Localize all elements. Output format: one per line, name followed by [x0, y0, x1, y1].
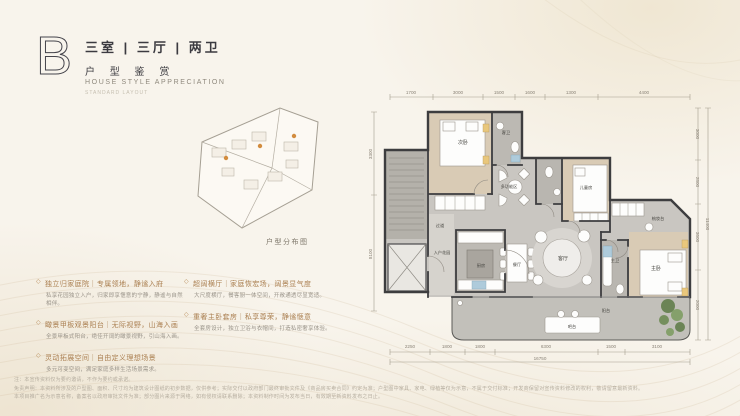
dim-value: 3300: [368, 148, 373, 159]
room-label-guest-bath: 客卫: [502, 129, 510, 136]
disclaimer-line: 注：本宣传资料仅为要约邀请，不作为要约或承诺。: [14, 376, 726, 384]
feature-item: ◇瞰景甲板观景阳台｜无际视野，山海入画 全景甲板式阳台，绝佳开阔的瞰景视野，引山…: [36, 320, 186, 342]
dim-total: 16750: [534, 356, 547, 361]
dim-value: 1700: [406, 90, 417, 95]
dim-value: 8100: [368, 248, 373, 259]
disclaimer-line: 免责声明：本资料所涉及的户型图、面积、尺寸均为建筑设计图纸的初步数据，仅供参考；…: [14, 385, 726, 393]
bath-mat: [511, 155, 520, 162]
room-label-bar: 吧台: [568, 323, 576, 330]
disclaimer-block: 注：本宣传资料仅为要约邀请，不作为要约或承诺。 免责声明：本资料所涉及的户型图、…: [14, 376, 726, 401]
armchair: [535, 231, 547, 243]
feature-item: ◇超阔横厅｜家庭恢宏场，阔景显气度 大尺度横厅，餐客厨一体空间，开敞通透尽显宽适…: [184, 279, 334, 301]
dim-value: 4400: [639, 90, 650, 95]
dim-value: 1300: [566, 90, 577, 95]
subtitle-english: HOUSE STYLE APPRECIATION: [85, 79, 226, 86]
dimension-chain-right: 3000 2800 3600 2000 11400: [695, 108, 711, 340]
nightstand: [483, 156, 489, 164]
toilet-icon: [616, 284, 624, 294]
side-table: [533, 275, 543, 285]
feature-title: 独立归家庭院｜专属领地，静谧入府: [45, 279, 163, 289]
dim-value: 1500: [494, 90, 505, 95]
diamond-bullet-icon: ◇: [184, 312, 189, 319]
dim-value: 3000: [695, 129, 700, 140]
sink-icon: [496, 122, 504, 130]
room-label-vanity: 梳妆台: [652, 215, 665, 222]
dimension-chain-left: 3300 8100: [368, 112, 377, 311]
dim-value: 3000: [453, 90, 464, 95]
feature-title: 超阔横厅｜家庭恢宏场，阔景显气度: [193, 279, 311, 289]
room-label-multifunction: 多功能区: [501, 183, 518, 190]
room-label-living: 客厅: [558, 255, 568, 262]
building-outline: [198, 108, 318, 228]
room-label-master-bath: 主卫: [611, 257, 619, 263]
sink-icon: [554, 189, 561, 196]
feature-item: ◇独立归家庭院｜专属领地，静谧入府 私享花园独立入户，归家即享惬意的宁静，静谧与…: [36, 279, 186, 309]
dim-value: 2250: [405, 344, 416, 349]
room-label-corridor: 过道: [436, 222, 445, 229]
subtitle-chinese: 户 型 鉴 赏: [85, 63, 175, 78]
floor-plan: 次卧 客卫 多功能区 儿童房 梳妆台 主卫 主卧 过道 入户花园 厨房 餐厅 客…: [368, 84, 713, 369]
room-label-dining: 餐厅: [513, 261, 521, 268]
pillow: [443, 122, 455, 131]
pillow: [668, 282, 682, 291]
dim-value: 1800: [475, 344, 486, 349]
diamond-bullet-icon: ◇: [36, 279, 41, 286]
plan-type-letter: B: [33, 24, 87, 86]
kitchen-sink: [472, 281, 486, 289]
vanity-sink-icon: [645, 223, 653, 231]
feature-desc: 私享花园独立入户，归家即享惬意的宁静，静谧与自然相伴。: [46, 293, 186, 309]
feature-title: 瞰景甲板观景阳台｜无际视野，山海入画: [45, 320, 178, 330]
feature-item: ◇灵动拓展空间｜自由定义理想场景 多元可变空间，满足家庭多样生活场景需求。: [36, 353, 186, 375]
toilet-icon: [545, 167, 553, 178]
dim-total: 11400: [705, 218, 710, 231]
room-label-kids-room: 儿童房: [580, 184, 593, 191]
dim-value: 6300: [541, 344, 552, 349]
site-plan-caption: 户型分布图: [266, 237, 309, 247]
feature-list-left: ◇独立归家庭院｜专属领地，静谧入府 私享花园独立入户，归家即享惬意的宁静，静谧与…: [36, 279, 186, 375]
dim-value: 1800: [442, 344, 453, 349]
site-plan-inset: [188, 102, 333, 242]
dim-value: 1600: [525, 90, 536, 95]
feature-desc: 多元可变空间，满足家庭多样生活场景需求。: [46, 367, 186, 375]
feature-item: ◇重奢主卧套房｜私享尊荣，静谧惬意 全套房设计，独立卫浴与衣帽间，打造私密奢享体…: [184, 312, 334, 334]
feature-desc: 大尺度横厅，餐客厨一体空间，开敞通透尽显宽适。: [194, 293, 334, 301]
dim-value: 3600: [695, 232, 700, 243]
dimension-chain-bottom: 2250 1800 1800 6300 1500 3100 16750: [390, 344, 690, 365]
room-count-title: 三室 | 三厅 | 两卫: [85, 37, 221, 56]
diamond-bullet-icon: ◇: [36, 320, 41, 327]
nightstand: [682, 240, 688, 248]
subtitle-tagline: STANDARD LAYOUT: [85, 90, 148, 96]
balcony-light: [458, 301, 463, 306]
hallway-cabinet: [435, 196, 485, 210]
letter-b-outline: B: [36, 26, 72, 86]
feature-desc: 全景甲板式阳台，绝佳开阔的瞰景视野，引山海入画。: [46, 334, 186, 342]
pillow: [575, 168, 585, 176]
diamond-bullet-icon: ◇: [36, 353, 41, 360]
side-table: [582, 275, 592, 285]
kitchen-counter: [458, 232, 503, 243]
nightstand: [682, 288, 688, 296]
pillow: [466, 122, 478, 131]
feature-desc: 全套房设计，独立卫浴与衣帽间，打造私密奢享体验。: [194, 326, 334, 334]
dimension-chain-top: 1700 3000 1500 1600 1300 4400: [390, 90, 690, 100]
room-label-second-bedroom: 次卧: [458, 139, 468, 146]
diamond-bullet-icon: ◇: [184, 279, 189, 286]
room-label-kitchen: 厨房: [477, 262, 485, 269]
feature-title: 重奢主卧套房｜私享尊荣，静谧惬意: [193, 312, 311, 322]
room-label-balcony: 阳台: [602, 307, 610, 314]
bar-stool: [572, 311, 579, 318]
pillow: [668, 253, 682, 262]
feature-title: 灵动拓展空间｜自由定义理想场景: [45, 353, 156, 363]
dim-value: 2000: [695, 300, 700, 311]
brochure-page: B 三室 | 三厅 | 两卫 户 型 鉴 赏 HOUSE STYLE APPRE…: [0, 0, 740, 416]
feature-list-right: ◇超阔横厅｜家庭恢宏场，阔景显气度 大尺度横厅，餐客厨一体空间，开敞通透尽显宽适…: [184, 279, 334, 334]
dim-value: 3100: [652, 344, 663, 349]
mid-bath-floor: [536, 159, 562, 204]
dim-value: 2800: [695, 177, 700, 188]
nightstand: [483, 124, 489, 132]
room-label-entry-garden: 入户花园: [434, 249, 451, 256]
toilet-icon: [511, 142, 519, 153]
dim-value: 1500: [606, 344, 617, 349]
bar-stool: [558, 311, 565, 318]
disclaimer-line: 本项目推广名为示意名称，备案名以政府审批文件为准；部分图片来源于网络，如有侵权请…: [14, 393, 726, 401]
room-label-master-bedroom: 主卧: [651, 265, 661, 272]
kids-wardrobe: [574, 213, 608, 221]
washer: [603, 246, 612, 257]
